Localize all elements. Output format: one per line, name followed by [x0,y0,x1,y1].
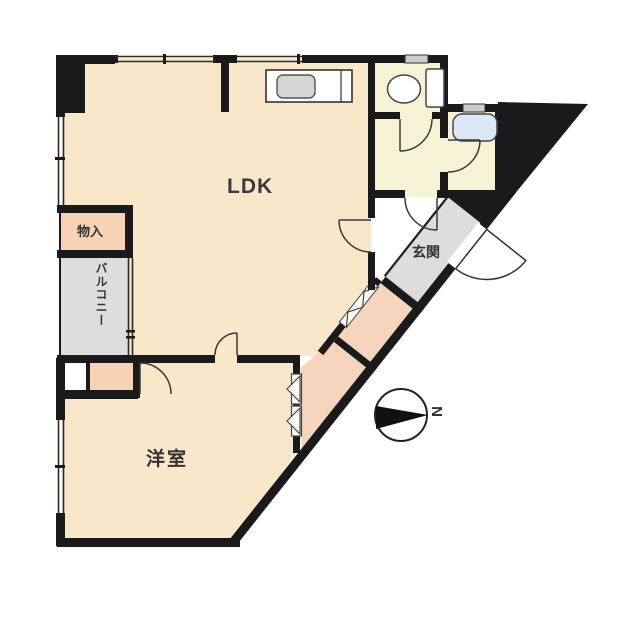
kitchen-sink-icon [277,75,315,98]
room-washroom [368,119,447,197]
toilet-vent-window [405,55,428,63]
kitchen-counter [266,70,352,102]
closet-white-box [62,360,88,394]
compass-icon [375,389,428,441]
window-left-upper [55,117,65,205]
room-fills [60,58,502,541]
ldk-label: LDK [227,175,273,199]
window-left-lower [55,420,65,513]
bath-vent-window [463,104,485,112]
balcony-label: バルコニー [93,262,110,358]
bathtub-icon [453,114,497,141]
western-room-label: 洋室 [146,444,188,471]
storage-label: 物入 [77,221,103,240]
entrance-label: 玄関 [412,242,440,262]
ldk-wall-stub [221,57,229,112]
compass-north-label: N [428,406,445,417]
closet-pink-box [88,360,133,394]
